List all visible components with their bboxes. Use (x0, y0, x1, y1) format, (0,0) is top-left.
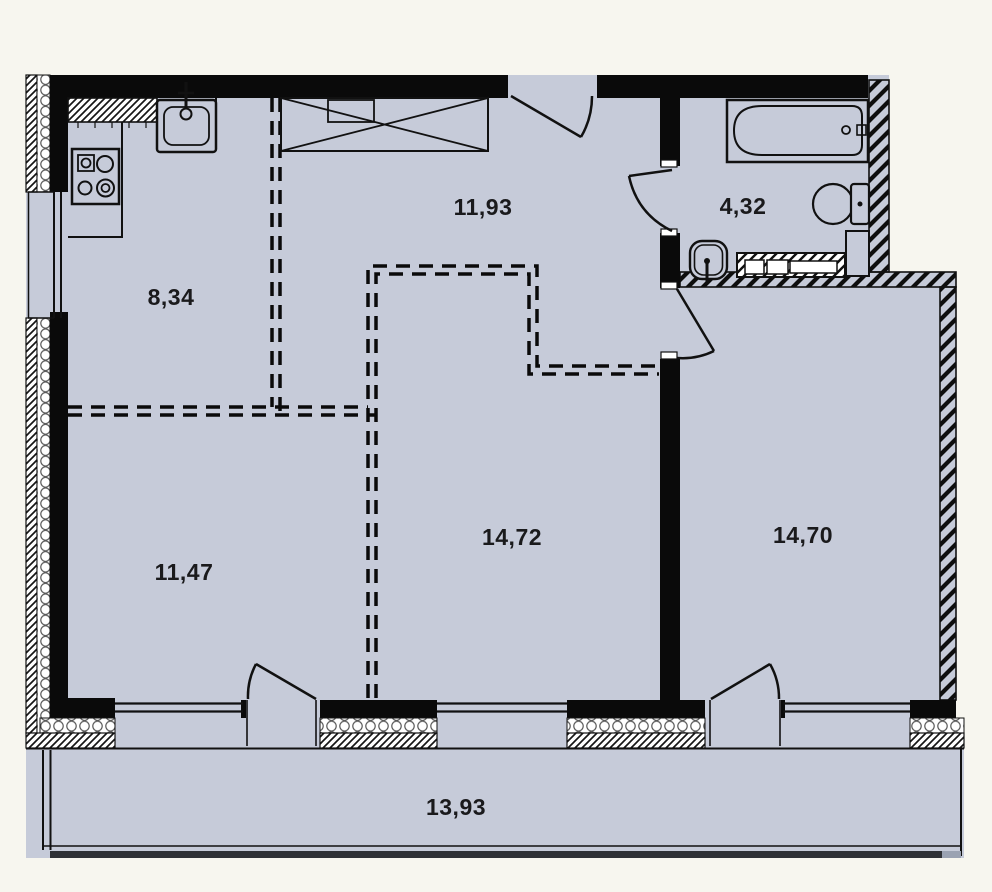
bathroom-cabinet (846, 231, 869, 276)
room-label-living-room: 14,72 (482, 524, 542, 550)
room-label-kitchen: 8,34 (148, 284, 195, 310)
washbasin-icon (690, 241, 727, 284)
exterior-wall-top (26, 75, 868, 98)
room-label-bathroom: 4,32 (720, 193, 767, 219)
room-label-room-right: 14,70 (773, 522, 833, 548)
floor-plan: 8,34 11,93 4,32 14,72 11,47 14,70 13,93 (0, 0, 992, 892)
room-label-room-left: 11,47 (155, 559, 214, 585)
washing-machine-icon (737, 253, 845, 277)
room-label-hallway: 11,93 (454, 194, 513, 220)
stove-icon (72, 149, 119, 204)
floor-plan-page: 8,34 11,93 4,32 14,72 11,47 14,70 13,93 (0, 0, 992, 892)
room-label-balcony: 13,93 (426, 794, 486, 820)
toilet-icon (813, 184, 869, 224)
